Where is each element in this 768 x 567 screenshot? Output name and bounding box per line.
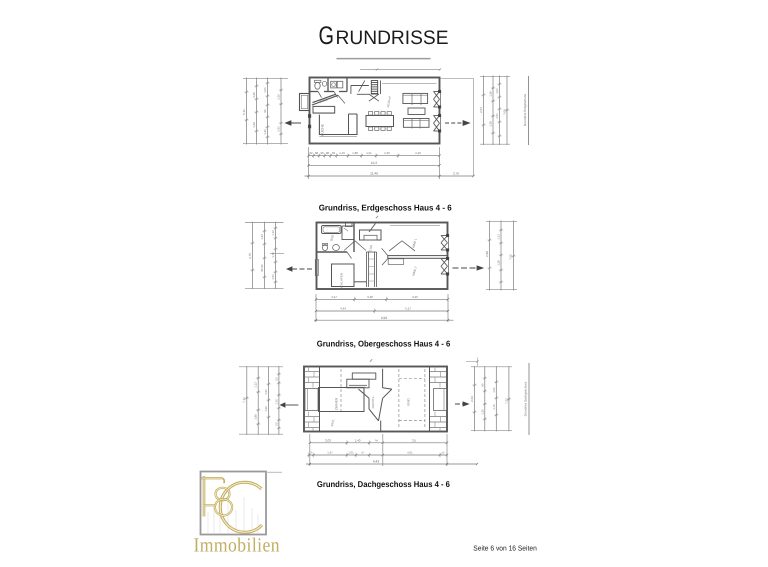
svg-text:1,38: 1,38 [489,121,493,127]
svg-text:52: 52 [274,422,278,426]
svg-text:62: 62 [309,151,313,155]
svg-text:1,01: 1,01 [263,87,267,93]
svg-text:74: 74 [374,438,378,442]
svg-text:1,26: 1,26 [263,129,267,135]
svg-text:2,76: 2,76 [453,172,459,176]
svg-text:2,75: 2,75 [248,253,252,259]
svg-text:1,13: 1,13 [254,382,258,388]
svg-text:Grundriss, Erdgeschoss Haus 4: Grundriss, Erdgeschoss Haus 4 - 6 [319,203,452,213]
svg-text:7,00: 7,00 [509,254,513,260]
svg-text:1,38: 1,38 [352,151,358,155]
svg-text:1,40: 1,40 [355,438,361,442]
svg-text:86: 86 [315,151,319,155]
svg-text:1,38: 1,38 [489,91,493,97]
svg-text:RUNDRISSE: RUNDRISSE [336,27,449,49]
svg-text:1,38: 1,38 [252,122,256,128]
svg-text:9,99: 9,99 [381,316,387,320]
svg-text:11,49: 11,49 [370,172,378,176]
svg-text:1,97: 1,97 [327,451,333,455]
svg-text:86: 86 [326,151,330,155]
svg-text:2,49: 2,49 [252,92,256,98]
svg-text:1,01: 1,01 [348,451,354,455]
svg-text:1,51: 1,51 [271,274,275,280]
svg-text:1,51: 1,51 [264,389,268,395]
svg-text:1,76: 1,76 [271,252,275,258]
svg-text:4,43: 4,43 [373,460,379,464]
svg-text:Immobilien: Immobilien [194,535,281,557]
svg-text:2,49: 2,49 [415,151,421,155]
svg-text:1,76: 1,76 [492,404,496,410]
svg-text:DACHFL.: DACHFL. [371,395,375,408]
svg-text:Grundriss Erdgeschoss: Grundriss Erdgeschoss [523,93,527,126]
svg-text:7,22: 7,22 [504,398,508,404]
svg-text:4,01: 4,01 [407,451,413,455]
svg-text:1,88: 1,88 [254,414,258,420]
svg-text:1,26: 1,26 [264,406,268,412]
svg-text:3,15: 3,15 [412,295,418,299]
svg-text:2,61: 2,61 [479,107,483,113]
svg-text:4,17: 4,17 [331,295,337,299]
svg-text:1,38: 1,38 [497,260,501,266]
svg-text:3,5: 3,5 [412,438,417,442]
svg-text:SCHLAFEN: SCHLAFEN [340,273,344,289]
svg-text:1,26: 1,26 [480,409,484,415]
svg-text:G: G [319,22,335,50]
svg-text:5,17: 5,17 [405,307,411,311]
svg-text:1,76: 1,76 [274,399,278,405]
svg-text:99: 99 [320,151,324,155]
svg-text:Grundriss Dachgeschoss: Grundriss Dachgeschoss [524,381,528,416]
svg-text:1,51: 1,51 [495,113,499,119]
svg-text:10,2: 10,2 [371,161,377,165]
svg-text:1,51: 1,51 [492,387,496,393]
svg-text:4,44: 4,44 [340,307,346,311]
svg-text:95 96: 95 96 [260,264,264,271]
svg-text:52: 52 [274,377,278,381]
svg-text:1,01: 1,01 [495,88,499,94]
svg-text:96: 96 [263,109,267,113]
svg-text:95: 95 [480,383,484,387]
svg-text:2,63: 2,63 [470,396,474,402]
svg-text:62: 62 [332,151,336,155]
svg-text:2,03: 2,03 [325,438,331,442]
svg-text:2,26: 2,26 [277,94,281,100]
svg-text:2,51: 2,51 [277,126,281,132]
svg-text:Grundriss, Dachgeschoss Haus 4: Grundriss, Dachgeschoss Haus 4 - 6 [317,479,450,489]
svg-text:KÜCHE: KÜCHE [321,123,325,136]
svg-text:ZIMMER: ZIMMER [335,397,339,410]
svg-text:1,13: 1,13 [339,151,345,155]
svg-text:3,46: 3,46 [367,295,373,299]
svg-text:1,13: 1,13 [497,234,501,240]
svg-text:2,26: 2,26 [384,151,390,155]
svg-text:7,11: 7,11 [242,397,246,403]
svg-text:KIND: KIND [407,397,411,405]
svg-text:5,11: 5,11 [242,109,246,115]
svg-text:Seite 6 von 16 Seiten: Seite 6 von 16 Seiten [473,544,537,553]
svg-text:1,43: 1,43 [260,234,264,240]
svg-text:1,13: 1,13 [271,230,275,236]
svg-text:2,88: 2,88 [485,251,489,257]
svg-text:Grundriss, Obergeschoss Haus 4: Grundriss, Obergeschoss Haus 4 - 6 [317,338,451,348]
svg-text:7,00: 7,00 [503,109,507,115]
svg-text:1,51: 1,51 [366,151,372,155]
